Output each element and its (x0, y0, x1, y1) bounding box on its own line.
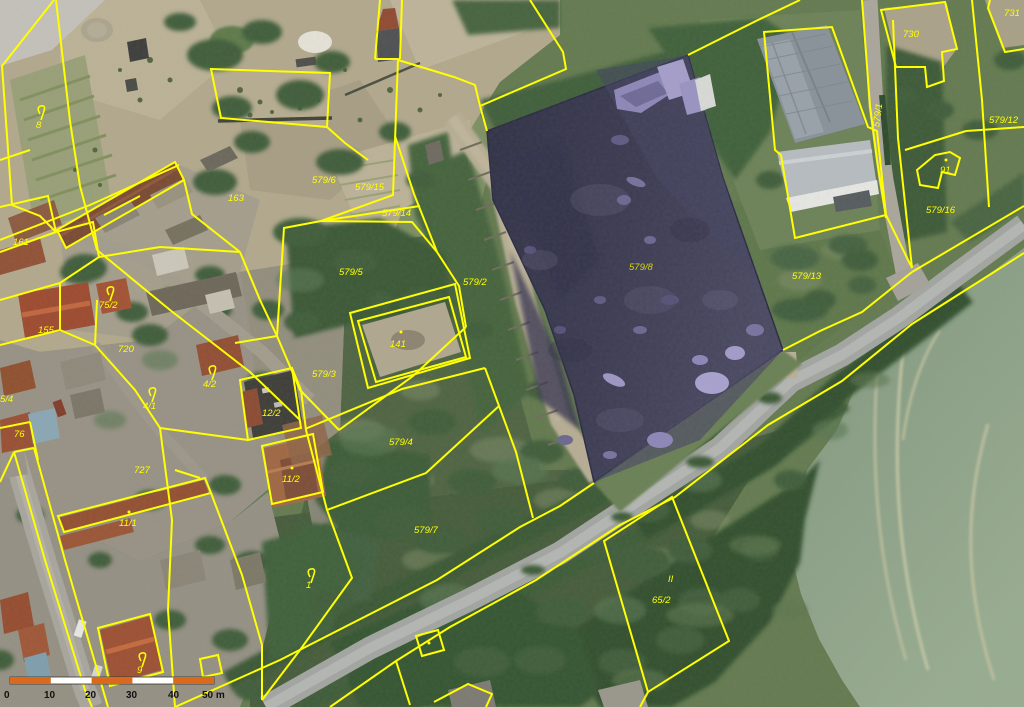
svg-text:579/7: 579/7 (414, 525, 438, 536)
svg-text:141: 141 (390, 339, 406, 350)
svg-text:40: 40 (168, 690, 180, 701)
svg-text:91: 91 (940, 165, 951, 176)
svg-text:579/4: 579/4 (389, 437, 413, 448)
svg-text:731: 731 (1004, 8, 1020, 19)
svg-text:579/8: 579/8 (629, 262, 653, 273)
svg-text:5/4: 5/4 (0, 394, 13, 405)
svg-text:579/15: 579/15 (355, 182, 385, 193)
svg-text:579/14: 579/14 (382, 208, 411, 219)
svg-text:11/1: 11/1 (119, 518, 137, 529)
svg-text:161: 161 (13, 237, 29, 248)
svg-text:10: 10 (44, 690, 56, 701)
svg-text:65/2: 65/2 (652, 595, 671, 606)
svg-text:720: 720 (118, 344, 135, 355)
svg-text:4/2: 4/2 (203, 379, 217, 390)
svg-text:579/13: 579/13 (792, 271, 822, 282)
svg-text:76: 76 (14, 429, 25, 440)
svg-text:II: II (668, 574, 674, 585)
svg-text:579/3: 579/3 (312, 369, 336, 380)
svg-text:8: 8 (36, 120, 42, 131)
svg-text:727: 727 (134, 465, 151, 476)
svg-text:50 m: 50 m (202, 690, 225, 701)
svg-text:1: 1 (306, 580, 311, 591)
svg-text:579/12: 579/12 (989, 115, 1019, 126)
svg-text:4/1: 4/1 (143, 401, 156, 412)
svg-text:579/16: 579/16 (926, 205, 956, 216)
svg-text:579/5: 579/5 (339, 267, 363, 278)
svg-text:163: 163 (228, 193, 245, 204)
svg-text:579/6: 579/6 (312, 175, 336, 186)
svg-text:30: 30 (126, 690, 138, 701)
svg-text:75/2: 75/2 (99, 300, 118, 311)
svg-text:730: 730 (903, 29, 920, 40)
svg-text:0: 0 (4, 690, 10, 701)
svg-text:579/2: 579/2 (463, 277, 487, 288)
svg-text:155: 155 (38, 325, 55, 336)
svg-text:11/2: 11/2 (282, 474, 301, 485)
svg-text:12/2: 12/2 (262, 408, 281, 419)
svg-text:20: 20 (85, 690, 97, 701)
